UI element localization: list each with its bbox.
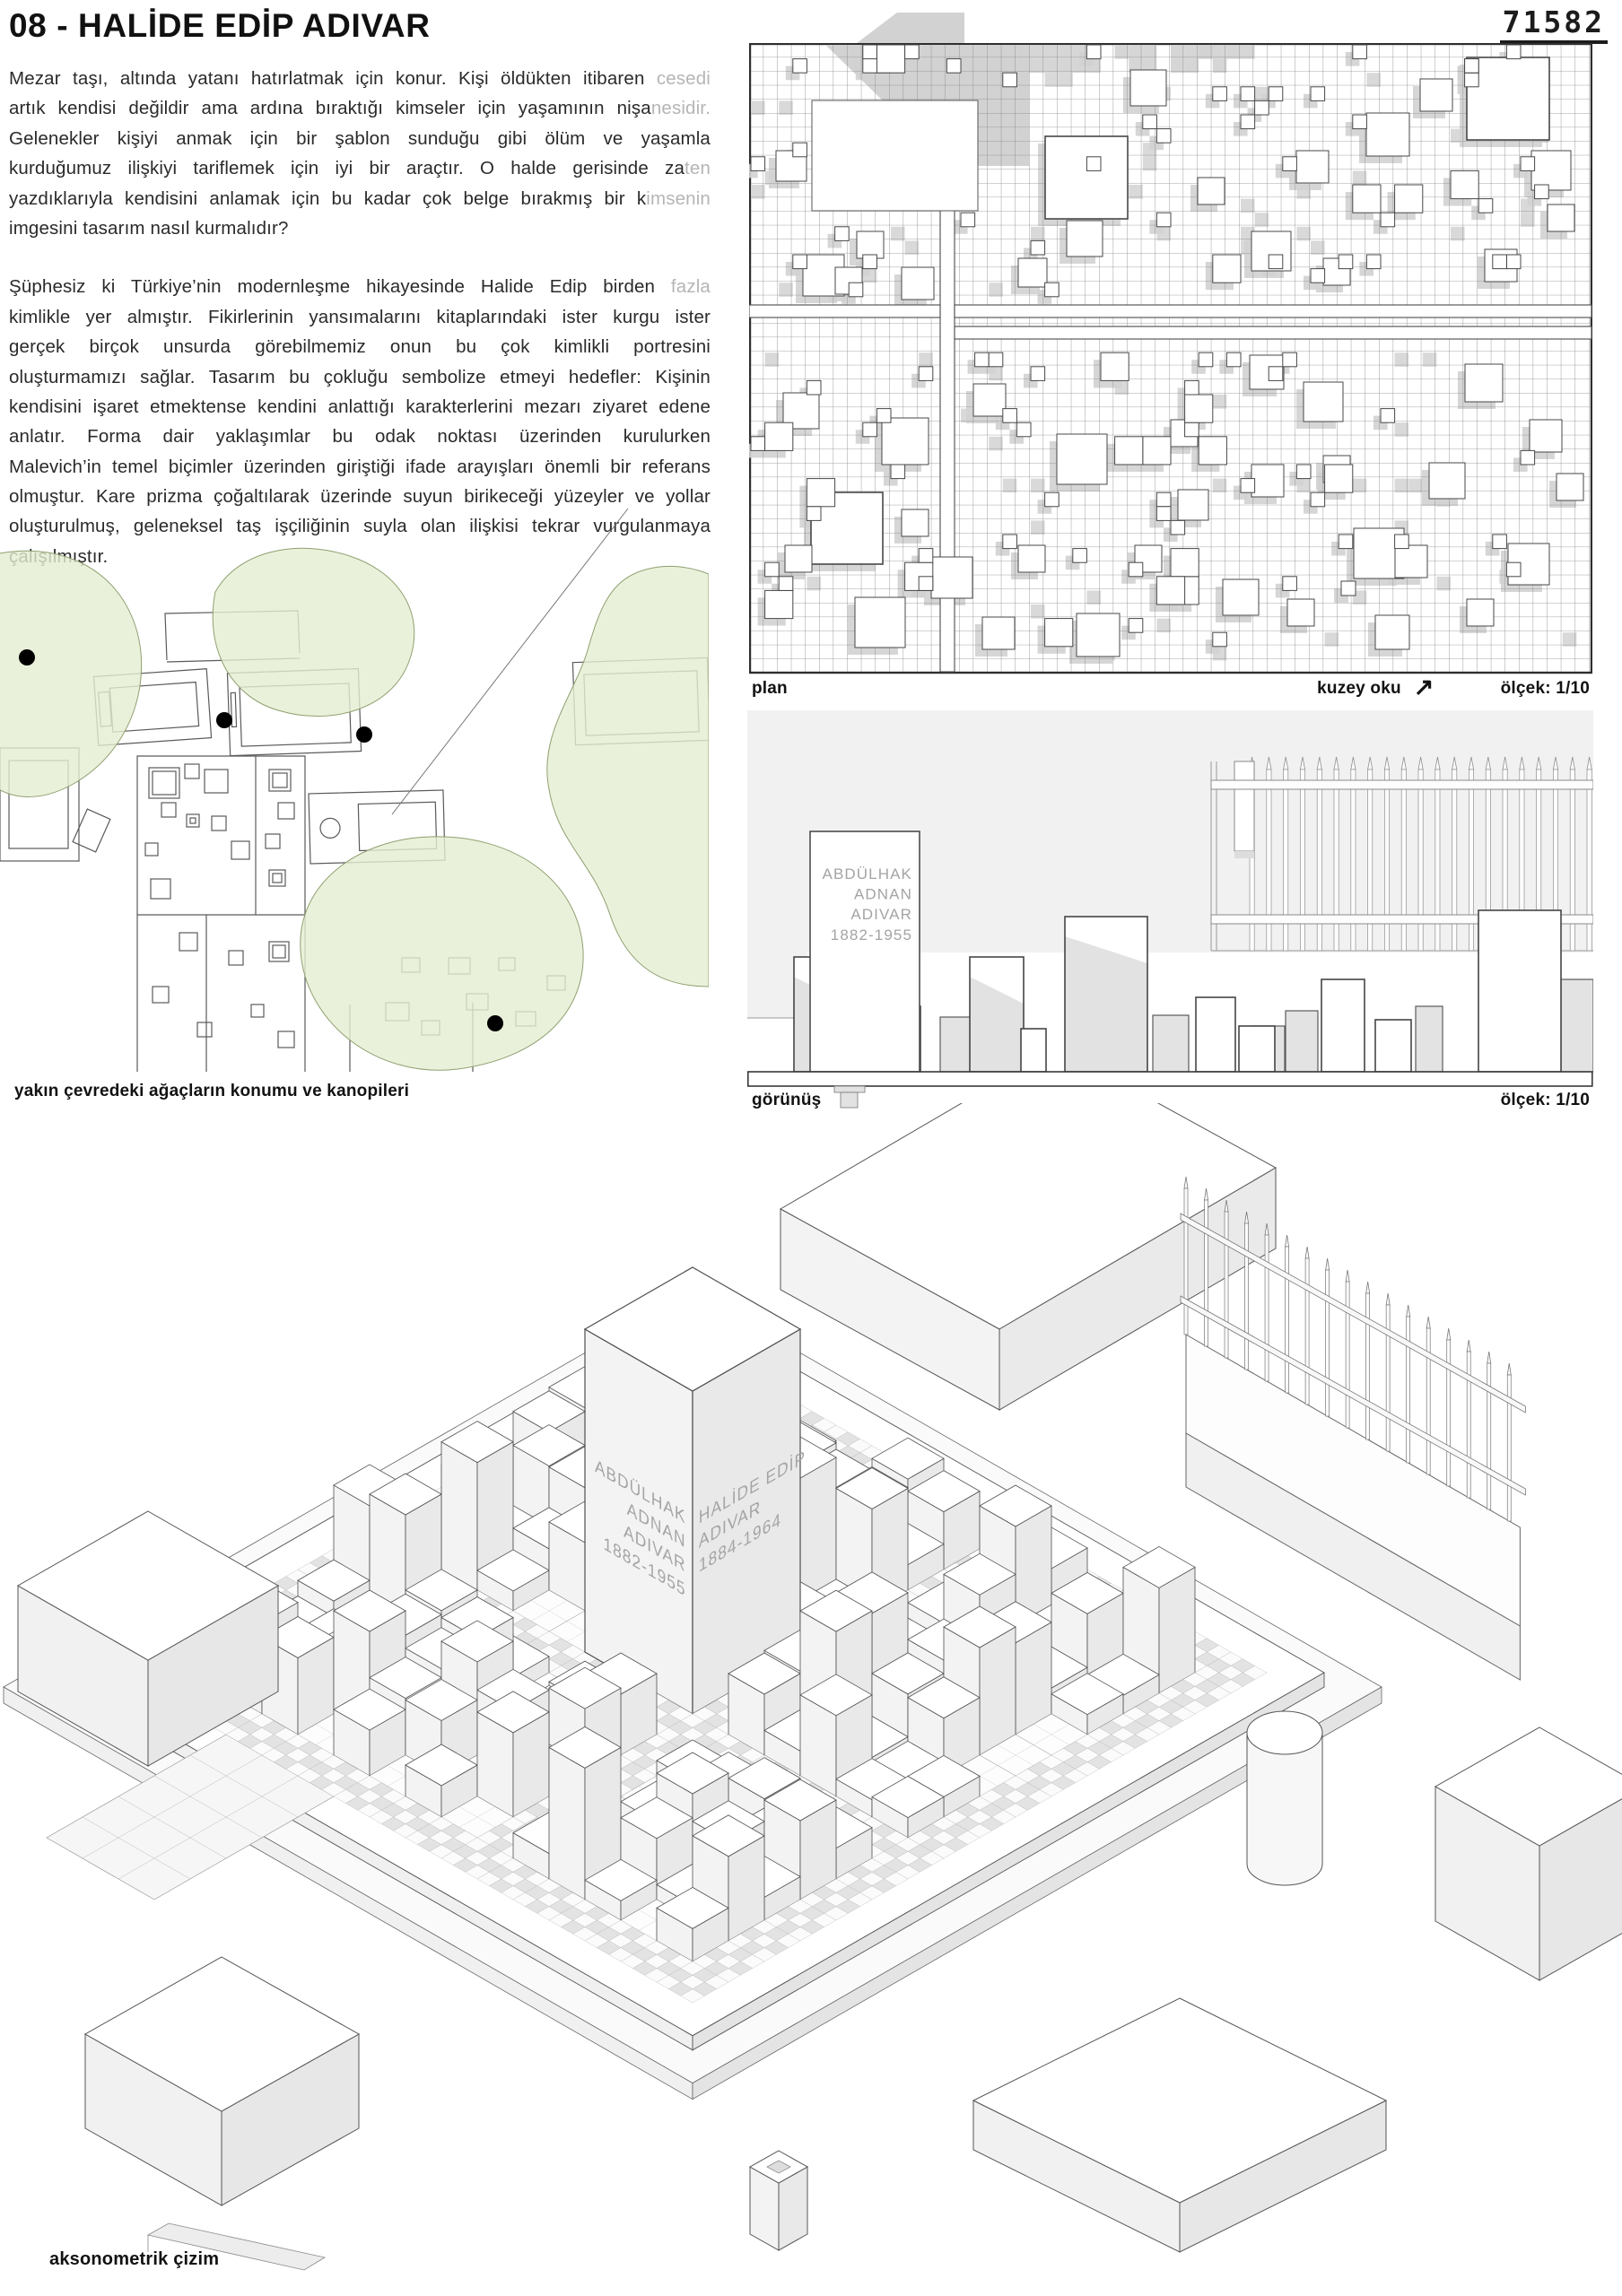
stone-inscription-line: ADNAN	[854, 886, 912, 903]
plan-caption-row: plan kuzey oku ↗ ölçek: 1/10	[752, 679, 1590, 699]
gravestone: ABDÜLHAKADNANADIVAR1882-1955	[810, 831, 920, 1072]
text-line: Mezar taşı, altında yatanı hatırlatmak i…	[9, 64, 711, 93]
plan-plaza	[812, 100, 978, 211]
stone-inscription-line: ADIVAR	[850, 906, 912, 923]
axonometric-drawing: ABDÜLHAKADNANADIVAR1882-1955HALİDE EDİPA…	[0, 1103, 1622, 2296]
stone-inscription-line: ABDÜLHAK	[823, 865, 912, 883]
tree-canopies	[0, 548, 709, 1070]
family-plot	[137, 756, 305, 1072]
site-plan-drawing	[0, 484, 709, 1076]
text-line: Malevich’in temel biçimler üzerinden gir…	[9, 452, 711, 482]
north-arrow-icon: ↗	[1414, 678, 1435, 696]
plan-scale-label: ölçek: 1/10	[1501, 679, 1590, 699]
text-line: Şüphesiz ki Türkiye’nin modernleşme hika…	[9, 272, 711, 301]
text-line: artık kendisi değildir ama ardına bırakt…	[9, 93, 711, 123]
axonometric-caption: aksonometrik çizim	[49, 2249, 219, 2270]
text-line: imgesini tasarım nasıl kurmalıdır?	[9, 213, 711, 243]
text-line: kimlikle yer almıştır. Fikirlerinin yans…	[9, 302, 711, 332]
faded-text: fazla	[655, 276, 711, 297]
page-title: 08 - HALİDE EDİP ADIVAR	[9, 7, 431, 45]
text-line: anlatır. Forma dair yaklaşımlar bu odak …	[9, 422, 711, 451]
obelisk-stone	[750, 2151, 807, 2250]
cylinder-stone	[1247, 1711, 1322, 1885]
faded-text: cesedi	[645, 68, 711, 89]
stone-inscription-line: 1882-1955	[831, 926, 912, 944]
faded-text: imsenin	[646, 188, 711, 209]
faded-text: ten	[685, 158, 711, 178]
entry-number: 71582	[1500, 4, 1608, 44]
text-line: gerçek birçok unsurda görebilmemiz onun …	[9, 332, 711, 361]
text-line: oluşturmamızı sağlar. Tasarım bu çokluğu…	[9, 362, 711, 392]
text-line: yazdıklarıyla kendisini anlamak için bu …	[9, 184, 711, 213]
site-plan-caption: yakın çevredeki ağaçların konumu ve kano…	[14, 1082, 409, 1101]
elevation-drawing: ABDÜLHAKADNANADIVAR1882-1955	[747, 710, 1593, 1110]
text-line: Gelenekler kişiyi anmak için bir şablon …	[9, 124, 711, 153]
plan-drawing	[749, 43, 1592, 674]
text-line: kendisini işaret etmektense kendini anla…	[9, 392, 711, 422]
plan-shadow-extension	[857, 13, 964, 43]
intro-paragraph-1: Mezar taşı, altında yatanı hatırlatmak i…	[9, 64, 711, 243]
prism-field	[118, 1267, 1267, 2003]
plan-label: plan	[752, 679, 788, 699]
north-label: kuzey oku	[1317, 679, 1401, 699]
competition-board: 08 - HALİDE EDİP ADIVAR 71582 Mezar taşı…	[0, 0, 1622, 2296]
text-line: kurduğumuz ilişkiyi tariflemek için iyi …	[9, 153, 711, 183]
faded-text: nesidir.	[651, 98, 711, 118]
